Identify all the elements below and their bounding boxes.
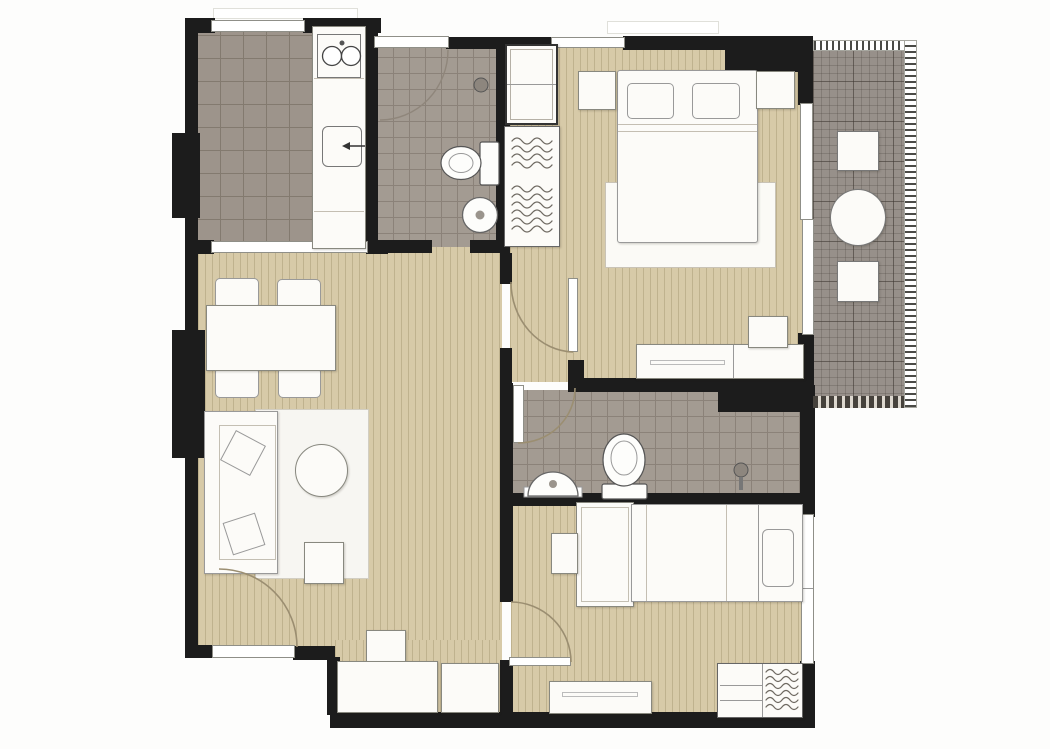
kitchen-window: [211, 20, 305, 32]
sheet-line: [646, 505, 647, 601]
dining-chair: [278, 367, 321, 398]
desk-stool: [551, 533, 578, 574]
pillow: [627, 83, 674, 119]
bedroom-2-wardrobe: [717, 663, 803, 718]
wall: [185, 645, 215, 658]
storage-cabinet: [337, 661, 438, 713]
balcony-railing: [813, 40, 917, 51]
wall-ac-ledge: [172, 133, 200, 218]
wall-corner-block: [725, 36, 813, 72]
balcony-sliding-door-panel: [802, 219, 814, 335]
headboard-line: [758, 505, 759, 601]
tv-stand: [748, 316, 788, 348]
floor-plan: [0, 0, 1050, 749]
blanket-line: [618, 131, 757, 132]
counter-joint: [314, 78, 364, 79]
bathroom-1-window: [374, 36, 449, 48]
wall: [568, 378, 813, 392]
balcony-round-table: [830, 189, 886, 246]
wardrobe-shelf: [720, 685, 762, 686]
kitchen-sink-unit: [317, 34, 361, 78]
wall: [365, 20, 378, 252]
dining-chair: [215, 367, 259, 398]
low-console: [549, 681, 652, 714]
roof-ledge: [607, 21, 719, 34]
storage-cabinet: [441, 663, 499, 713]
bathroom-1-floor: [377, 45, 498, 250]
wall: [367, 240, 432, 253]
balcony-sliding-door-panel: [800, 103, 813, 220]
dining-table: [206, 305, 336, 371]
entry-stool: [366, 630, 406, 663]
main-entrance-threshold: [212, 645, 295, 658]
nightstand-left: [578, 71, 616, 110]
wall: [798, 70, 813, 105]
balcony-railing: [904, 40, 917, 408]
counter-joint: [314, 211, 364, 212]
nightstand-right: [756, 71, 795, 109]
coffee-table: [295, 444, 348, 497]
drawer-handle: [562, 692, 638, 697]
shower-partition: [718, 392, 802, 412]
bathroom-2-door-leaf: [513, 385, 524, 443]
balcony-stool: [837, 261, 879, 302]
master-wardrobe: [504, 126, 560, 247]
wall: [500, 660, 513, 715]
shelf-divider: [507, 84, 556, 85]
kitchen-cooktop: [322, 126, 362, 167]
window-mullion: [802, 588, 813, 589]
wardrobe-shelf: [720, 700, 762, 701]
master-bedroom-door-leaf: [568, 278, 578, 352]
bedroom-2-door-leaf: [509, 657, 571, 666]
blanket-line: [726, 505, 727, 601]
balcony-edge: [813, 396, 904, 408]
desk-inner: [581, 507, 629, 602]
balcony-stool: [837, 131, 879, 171]
drawer-handle: [650, 360, 725, 365]
dresser-divider: [733, 345, 734, 378]
blanket-line: [618, 124, 757, 125]
pillow: [692, 83, 740, 119]
wall: [623, 36, 727, 50]
wall-ac-ledge: [172, 330, 205, 458]
side-table: [304, 542, 344, 584]
wardrobe-divider: [762, 664, 763, 717]
master-bedroom-window: [551, 37, 625, 48]
kitchen-floor: [197, 31, 315, 243]
wall: [500, 348, 512, 385]
wall: [500, 253, 512, 284]
pillow: [762, 529, 794, 587]
